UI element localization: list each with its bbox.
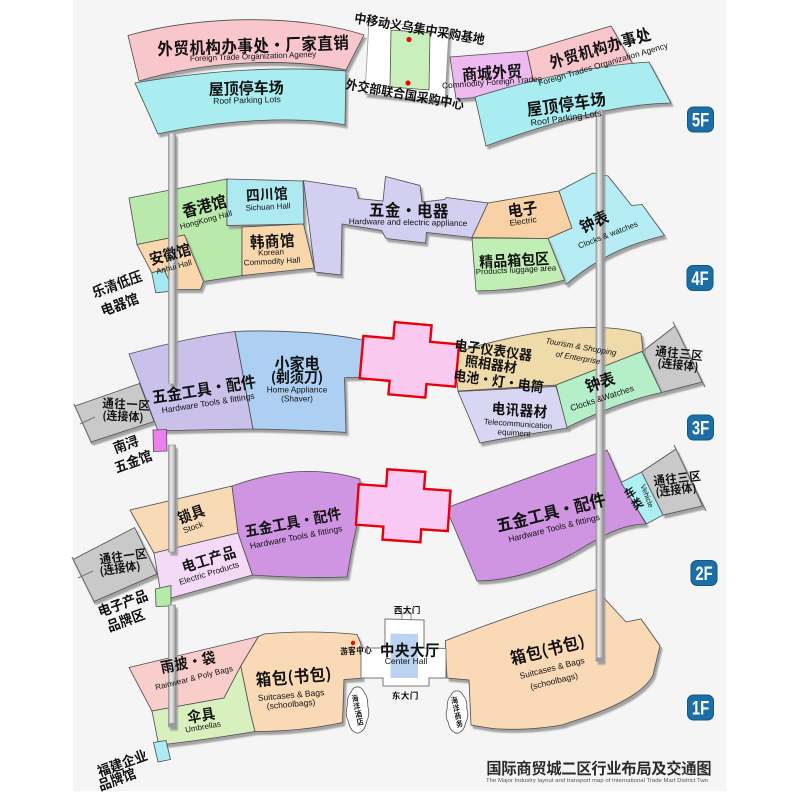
svg-text:3F: 3F: [692, 418, 709, 439]
svg-text:1F: 1F: [692, 698, 709, 719]
svg-text:5F: 5F: [692, 110, 709, 131]
svg-text:4F: 4F: [691, 268, 708, 289]
svg-text:Center Hall: Center Hall: [385, 656, 428, 666]
svg-text:The Major Industry layout and: The Major Industry layout and transport …: [486, 778, 708, 784]
svg-text:(Shaver): (Shaver): [281, 394, 313, 404]
svg-text:2F: 2F: [695, 563, 712, 584]
svg-text:Roof Parking Lots: Roof Parking Lots: [213, 94, 281, 106]
svg-text:Hardware and electric applianc: Hardware and electric appliance: [349, 216, 468, 228]
